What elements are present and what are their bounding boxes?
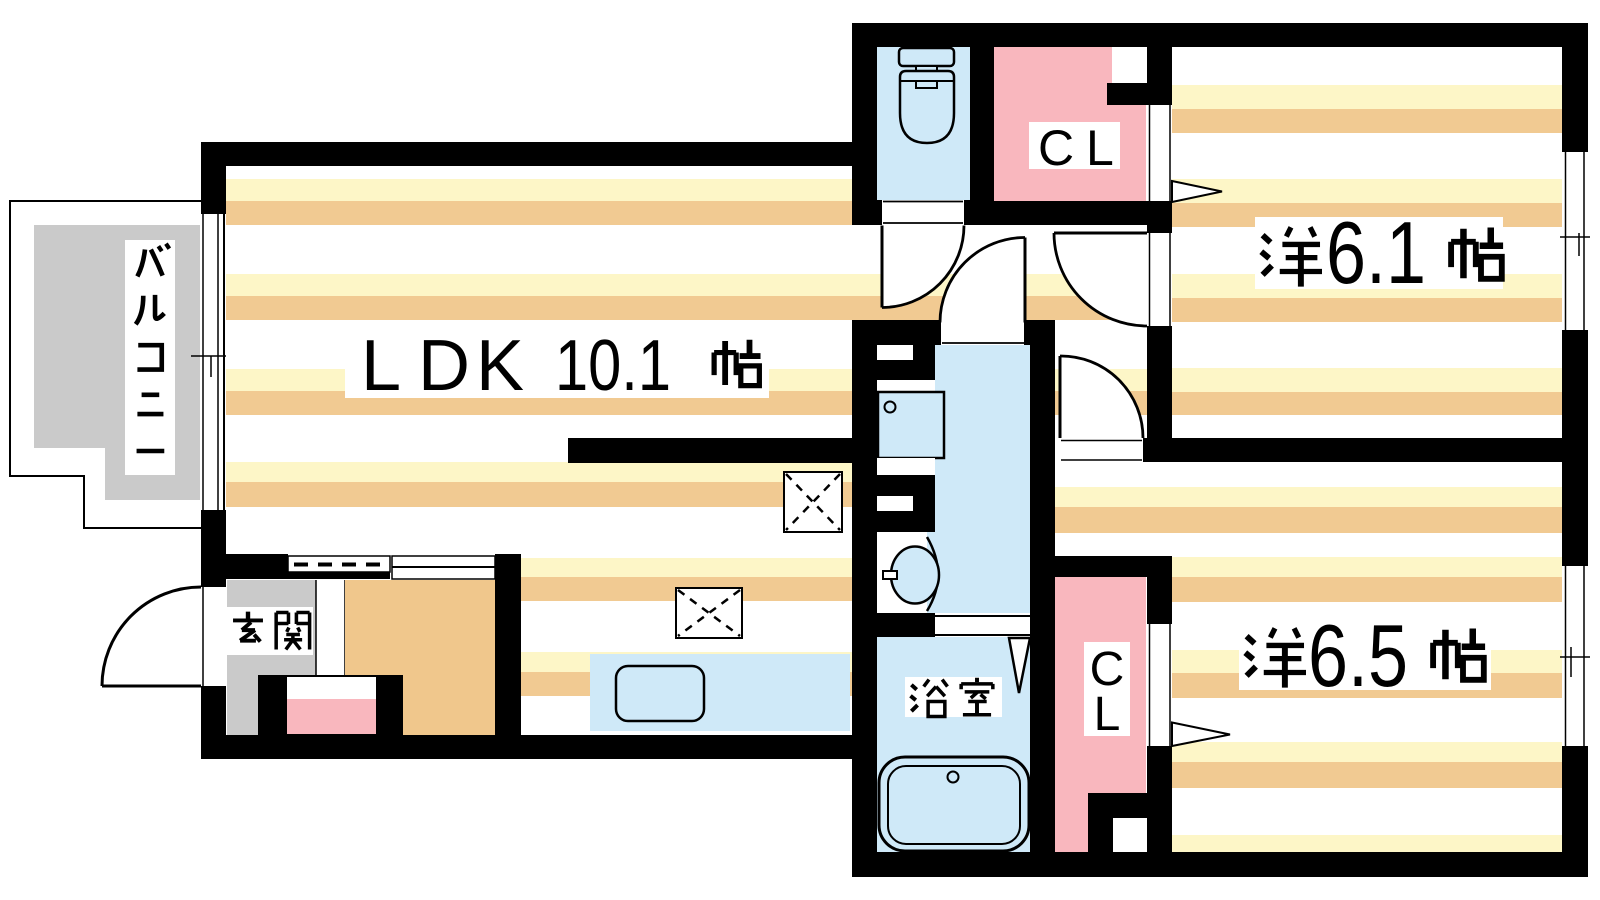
svg-text:C: C [1038,120,1074,176]
svg-text:K: K [476,326,524,406]
svg-text:D: D [418,326,470,406]
svg-text:6.5: 6.5 [1308,606,1408,705]
svg-text:L: L [361,326,401,406]
svg-text:6.1: 6.1 [1326,203,1426,302]
svg-text:L: L [1086,120,1114,176]
svg-text:10.1: 10.1 [555,326,671,406]
svg-text:L: L [1094,688,1121,741]
